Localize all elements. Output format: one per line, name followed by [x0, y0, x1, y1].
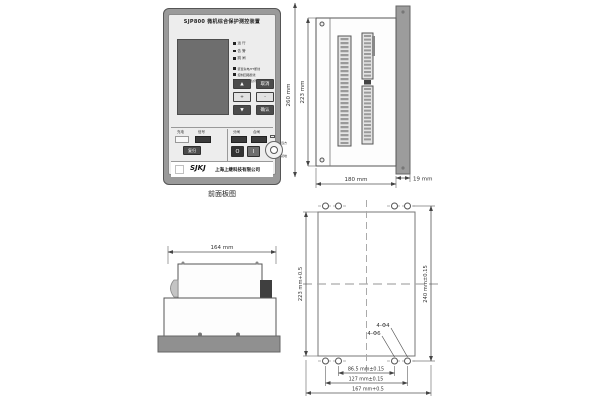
connector-tab	[372, 36, 375, 56]
open-label: 分闸	[233, 130, 240, 135]
company-logo: SJKJ	[190, 164, 206, 172]
leader-line	[391, 328, 408, 357]
case-screw-icon	[320, 22, 324, 26]
top-view-drawing: 164 mm	[152, 240, 287, 358]
front-panel-caption: 前面板图	[163, 189, 281, 199]
dim-hole-inner: 86.5 mm±0.15	[348, 367, 384, 373]
led-indicator-column: 运 行 告 警 跳 闸 装置失电/PT断线 控制回路断线	[233, 41, 277, 85]
plus-button[interactable]: +	[233, 92, 251, 102]
control-area: 充电 信号 复归 分闸 合闸 O I 远方 就地	[171, 129, 273, 161]
led-icon	[233, 67, 236, 70]
mounting-hole	[336, 203, 342, 209]
knob-core-icon	[270, 146, 278, 154]
panel-divider	[171, 127, 273, 128]
dim-depth: 180 mm	[345, 177, 368, 183]
charge-label: 充电	[177, 130, 184, 135]
mounting-hole	[405, 203, 411, 209]
cutout-drawing: 4-Φ4 4-Φ6 223 mm+0.5 240 mm±0.15 86.5 mm…	[295, 196, 447, 400]
side-view-drawing: 260 mm 223 mm 180 mm 19 mm	[286, 0, 440, 198]
dim-hole-height: 240 mm±0.15	[423, 265, 429, 303]
status-led-label: 装置失电/PT断线	[238, 67, 261, 71]
up-button[interactable]: ▲	[233, 79, 251, 89]
clip-icon	[171, 280, 179, 297]
charge-lamp	[175, 136, 189, 143]
mounting-hole	[392, 358, 398, 364]
reset-button[interactable]: 复归	[183, 146, 201, 155]
led-label: 告 警	[238, 49, 246, 54]
minus-button[interactable]: -	[256, 92, 274, 102]
mounting-hole	[392, 203, 398, 209]
case-top-outline	[178, 264, 262, 298]
mounting-plate	[396, 6, 410, 174]
screw-icon	[256, 262, 259, 265]
hole-label-b: 4-Φ6	[367, 331, 381, 337]
lcd-screen	[177, 39, 229, 115]
led-row: 运 行	[233, 41, 277, 46]
front-panel-view: SJP800 微机综合保护测控装置 运 行 告 警 跳 闸	[163, 8, 281, 185]
led-icon	[233, 42, 236, 45]
plate-screw-icon	[401, 166, 404, 169]
led-row: 跳 闸	[233, 56, 277, 61]
status-led-label: 控制回路断线	[238, 73, 256, 77]
dim-total-height: 260 mm	[286, 84, 292, 107]
bezel-outline	[164, 298, 276, 336]
off-button[interactable]: O	[231, 146, 244, 157]
down-button[interactable]: ▼	[233, 105, 251, 115]
open-window	[231, 136, 247, 143]
dim-width: 167 mm+0.5	[352, 387, 384, 393]
front-panel-face: SJP800 微机综合保护测控装置 运 行 告 警 跳 闸	[168, 14, 276, 175]
signal-window	[195, 136, 211, 143]
device-title: SJP800 微机综合保护测控装置	[169, 18, 275, 25]
drawing-sheet: SJP800 微机综合保护测控装置 运 行 告 警 跳 闸	[0, 0, 600, 400]
led-label: 运 行	[238, 41, 246, 46]
confirm-button[interactable]: 确认	[256, 105, 274, 115]
company-name: 上海上继科技有限公司	[215, 167, 260, 173]
dim-hole-outer: 127 mm±0.15	[349, 377, 384, 383]
screw-icon	[182, 262, 185, 265]
status-led-row: 装置失电/PT断线	[233, 67, 277, 71]
led-row: 告 警	[233, 49, 277, 54]
brand-mark	[175, 165, 184, 174]
connector-block	[364, 80, 371, 85]
case-screw-icon	[320, 158, 324, 162]
on-button[interactable]: I	[247, 146, 260, 157]
signal-label: 信号	[198, 130, 205, 135]
brand-strip: SJKJ 上海上继科技有限公司	[171, 161, 273, 177]
cancel-button[interactable]: 取消	[256, 79, 274, 89]
led-icon	[233, 50, 236, 53]
connector-block	[260, 280, 272, 298]
status-led-row: 控制回路断线	[233, 73, 277, 77]
mounting-hole	[336, 358, 342, 364]
mounting-hole	[405, 358, 411, 364]
dim-panel-thickness: 19 mm	[413, 177, 432, 183]
keypad: ▲ 取消 + - ▼ 确认	[233, 79, 274, 115]
hole-label-a: 4-Φ4	[376, 323, 390, 329]
leader-line	[382, 336, 395, 357]
dim-height: 223 mm+0.5	[298, 267, 304, 301]
dim-width: 164 mm	[211, 245, 234, 251]
case-outline	[316, 18, 396, 166]
led-icon	[233, 73, 236, 76]
led-icon	[233, 57, 236, 60]
switch-icon	[270, 135, 275, 138]
mounting-hole	[323, 203, 329, 209]
dim-case-height: 223 mm	[300, 81, 306, 104]
led-label: 跳 闸	[238, 56, 246, 61]
control-divider	[227, 129, 228, 161]
panel-bar	[158, 336, 280, 352]
close-label: 合闸	[253, 130, 260, 135]
plate-screw-icon	[401, 10, 404, 13]
mounting-hole	[323, 358, 329, 364]
close-window	[251, 136, 267, 143]
